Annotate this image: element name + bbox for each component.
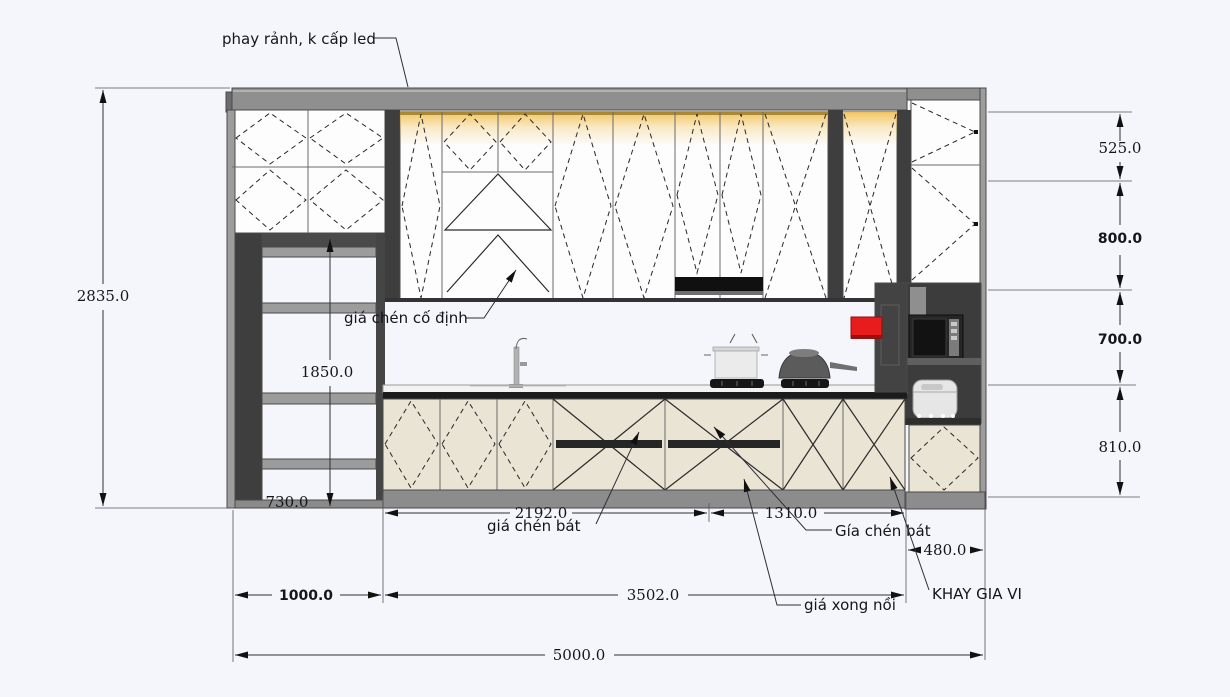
drawer-handle: [668, 440, 780, 448]
label-fixed-dish-rack: giá chén cố định: [344, 309, 468, 327]
shelf: [262, 393, 376, 404]
pot: [704, 334, 768, 378]
dimension-total-height: 2835.0: [77, 88, 233, 508]
crown-band: [226, 88, 985, 112]
label-dish-rack-lower: giá chén bát: [487, 517, 581, 535]
dim-2835: 2835.0: [77, 287, 130, 305]
drawing-canvas: 525.0 800.0 700.0 810.0 2835.0 1850.0 73…: [0, 0, 1230, 697]
wok: [779, 349, 857, 378]
dimension-right-chain: 525.0 800.0 700.0 810.0: [988, 112, 1142, 497]
bread-maker: [913, 380, 957, 418]
label-led-note: phay rảnh, k cấp led: [222, 30, 376, 48]
appliance-niche: [905, 283, 981, 425]
dim-700: 700.0: [1098, 332, 1143, 348]
dim-810: 810.0: [1099, 438, 1142, 456]
pan-handle: [830, 362, 857, 371]
dimension-open-shelf: 1850.0 730.0: [266, 239, 354, 511]
led-strip: [400, 112, 828, 146]
countertop: [383, 385, 907, 399]
shelf: [262, 459, 376, 469]
label-spice-tray: KHAY GIA VI: [932, 585, 1022, 603]
kitchen-elevation-drawing: 525.0 800.0 700.0 810.0 2835.0 1850.0 73…: [0, 0, 1230, 697]
faucet: [470, 338, 566, 388]
dim-730: 730.0: [266, 493, 309, 511]
microwave: [909, 315, 963, 360]
dim-5000: 5000.0: [553, 646, 606, 664]
label-dish-rack-right: Gía chén bát: [835, 522, 931, 540]
drawer-handle: [556, 440, 662, 448]
dim-525: 525.0: [1099, 139, 1142, 157]
dim-1850: 1850.0: [301, 363, 354, 381]
label-pot-rack: giá xong nồi: [804, 596, 896, 614]
right-tall-unit: [905, 88, 986, 509]
dim-480: 480.0: [924, 541, 967, 559]
range-hood: [675, 277, 763, 291]
dim-3502: 3502.0: [627, 586, 680, 604]
red-cutting-board: [851, 317, 882, 338]
base-cabinet-run: [383, 399, 905, 508]
gas-burner: [781, 379, 829, 388]
upper-cabinet-run: [385, 110, 911, 302]
dim-1000: 1000.0: [279, 588, 333, 604]
dim-800: 800.0: [1098, 231, 1143, 247]
shelf: [262, 247, 376, 257]
